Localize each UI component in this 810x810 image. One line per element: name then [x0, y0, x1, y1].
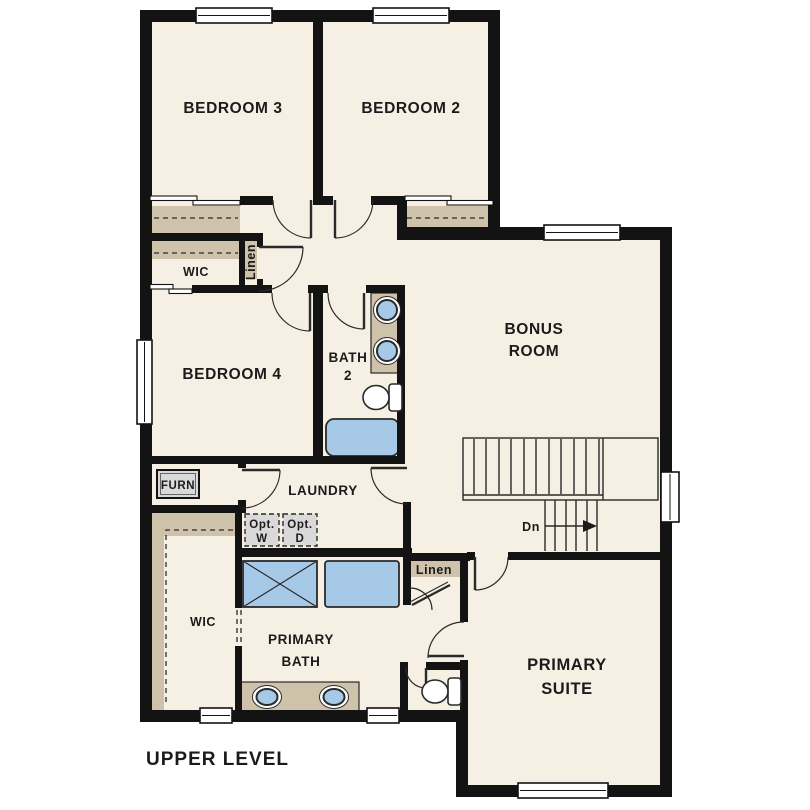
room-label-bonus-line1: BONUS	[505, 321, 564, 338]
room-label-primary-bath-line1: PRIMARY	[268, 632, 334, 647]
sliding-door-panel	[150, 285, 173, 290]
wall-seg	[403, 553, 470, 561]
label-opt-washer-line1: Opt.	[249, 519, 274, 531]
wall-seg	[403, 557, 411, 605]
room-label-bedroom4: BEDROOM 4	[182, 366, 281, 383]
sliding-door-panel	[169, 289, 192, 294]
room-label-wic-hall: WIC	[183, 265, 209, 279]
label-opt-washer-line2: W	[256, 533, 267, 545]
wall-seg	[235, 513, 242, 608]
wall-suite-top	[508, 552, 672, 560]
room-label-wic-primary: WIC	[190, 615, 216, 629]
room-label-bedroom3: BEDROOM 3	[183, 100, 282, 117]
wall-seg	[323, 196, 333, 205]
room-label-bath2-line2: 2	[344, 368, 352, 383]
wic-primary-shelf-left	[152, 536, 164, 710]
wall-seg	[397, 196, 407, 240]
exterior-wall-suite-left-step	[456, 710, 468, 797]
wall-seg	[146, 456, 405, 464]
wall-seg	[240, 196, 273, 205]
sliding-door-panel	[447, 201, 493, 206]
room-label-linen-hall: Linen	[244, 244, 258, 280]
wall-seg	[426, 662, 462, 670]
wall-bonus-top	[397, 227, 672, 240]
label-opt-dryer-line1: Opt.	[287, 519, 312, 531]
wic-hall-shelf	[152, 241, 240, 259]
wall-seg	[403, 502, 411, 553]
room-label-furnace: FURN	[161, 480, 195, 492]
sink-primary-right	[324, 689, 345, 705]
sliding-door-panel	[405, 196, 451, 201]
plan-title: UPPER LEVEL	[146, 749, 289, 770]
wall-bedroom-divider	[313, 16, 323, 205]
toilet-tank-wc	[448, 678, 461, 705]
room-label-linen-primary: Linen	[416, 563, 452, 577]
wic-primary-shelf-top	[152, 513, 235, 536]
toilet-bowl-bath2	[363, 386, 389, 410]
wall-seg	[400, 662, 408, 712]
room-label-bonus-line2: ROOM	[509, 343, 560, 360]
wall-seg	[146, 505, 242, 513]
room-label-primary-suite-line2: SUITE	[541, 680, 593, 698]
floor-plan-svg: BEDROOM 3 BEDROOM 2 BEDROOM 4 BATH 2 BON…	[0, 0, 810, 810]
toilet-tank-bath2	[389, 384, 402, 411]
sink-primary-left	[257, 689, 278, 705]
sliding-door-panel	[150, 196, 197, 201]
room-label-laundry: LAUNDRY	[288, 483, 358, 498]
wall-suite-left-upper	[460, 553, 468, 622]
label-opt-dryer-line2: D	[296, 533, 305, 545]
wall-laundry-bath	[235, 548, 412, 557]
toilet-bowl-wc	[422, 680, 448, 703]
room-label-primary-bath-line2: BATH	[282, 654, 321, 669]
primary-tub-fixture	[325, 561, 399, 607]
room-label-bath2-line1: BATH	[329, 350, 368, 365]
room-label-primary-suite-line1: PRIMARY	[527, 656, 607, 674]
room-label-bedroom2: BEDROOM 2	[361, 100, 460, 117]
sliding-door-panel	[193, 201, 240, 206]
exterior-wall-bottom	[140, 710, 468, 722]
bath2-tub-fixture	[326, 419, 399, 456]
stairs-down-label: Dn	[522, 520, 540, 534]
sink-bath2-bottom	[377, 341, 397, 361]
wall-seg	[192, 285, 272, 293]
wall-seg	[146, 233, 263, 241]
wall-seg	[235, 646, 242, 712]
bedroom3-closet-shelf	[152, 206, 240, 233]
wall-bedroom4-bath2	[313, 285, 323, 464]
wall-seg	[238, 456, 246, 468]
sink-bath2-top	[377, 300, 397, 320]
